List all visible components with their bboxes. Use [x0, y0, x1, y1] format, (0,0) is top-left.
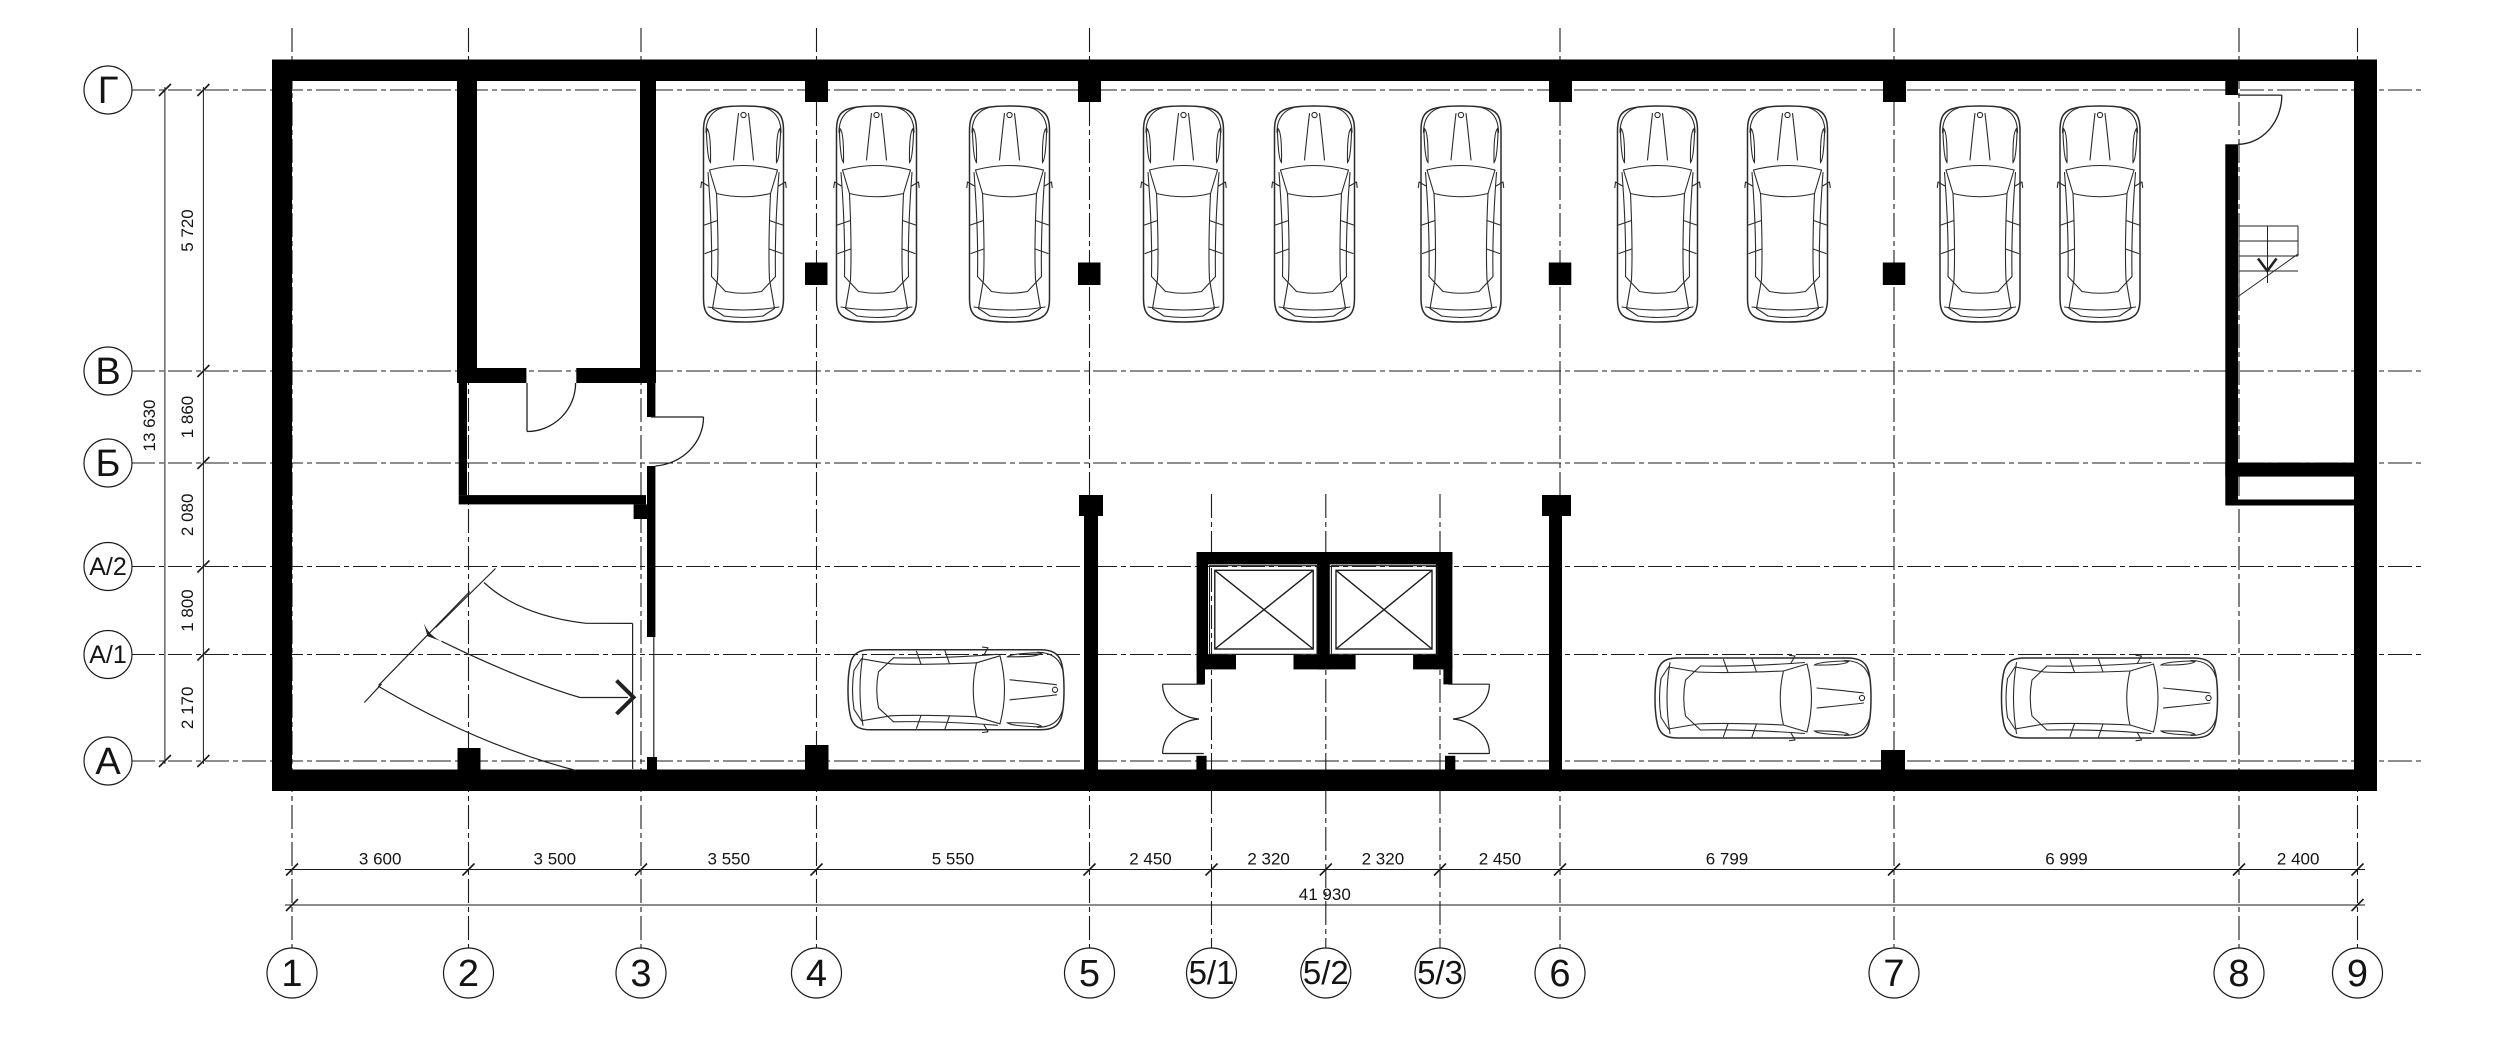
- svg-text:Б: Б: [96, 443, 121, 485]
- svg-text:1 860: 1 860: [178, 396, 197, 439]
- svg-text:41 930: 41 930: [1299, 885, 1351, 904]
- svg-text:А/1: А/1: [89, 641, 127, 669]
- svg-text:5 720: 5 720: [178, 209, 197, 252]
- svg-text:3 600: 3 600: [359, 850, 402, 869]
- svg-text:А/2: А/2: [89, 553, 127, 581]
- svg-text:5/1: 5/1: [1189, 954, 1235, 991]
- svg-text:В: В: [95, 351, 120, 393]
- svg-text:1 800: 1 800: [178, 589, 197, 632]
- svg-text:7: 7: [1883, 953, 1904, 995]
- svg-text:3 550: 3 550: [708, 850, 751, 869]
- svg-text:2 400: 2 400: [2277, 850, 2320, 869]
- svg-text:5/2: 5/2: [1303, 954, 1349, 991]
- svg-text:5 550: 5 550: [932, 850, 975, 869]
- svg-text:2 320: 2 320: [1362, 850, 1405, 869]
- svg-text:13 630: 13 630: [140, 400, 159, 452]
- svg-text:2 080: 2 080: [178, 494, 197, 537]
- svg-text:2: 2: [458, 953, 479, 995]
- svg-text:2 450: 2 450: [1129, 850, 1172, 869]
- svg-text:5: 5: [1079, 953, 1100, 995]
- svg-text:4: 4: [806, 953, 827, 995]
- svg-text:Г: Г: [98, 70, 119, 112]
- svg-text:9: 9: [2347, 953, 2368, 995]
- svg-text:А: А: [95, 741, 121, 783]
- svg-text:3 500: 3 500: [534, 850, 577, 869]
- svg-text:6 799: 6 799: [1706, 850, 1749, 869]
- svg-text:8: 8: [2228, 953, 2249, 995]
- svg-text:2 450: 2 450: [1479, 850, 1522, 869]
- svg-text:1: 1: [281, 953, 302, 995]
- svg-text:6: 6: [1549, 953, 1570, 995]
- svg-text:2 170: 2 170: [178, 687, 197, 730]
- svg-text:3: 3: [630, 953, 651, 995]
- svg-text:2 320: 2 320: [1247, 850, 1290, 869]
- svg-text:5/3: 5/3: [1417, 954, 1463, 991]
- svg-text:6 999: 6 999: [2045, 850, 2088, 869]
